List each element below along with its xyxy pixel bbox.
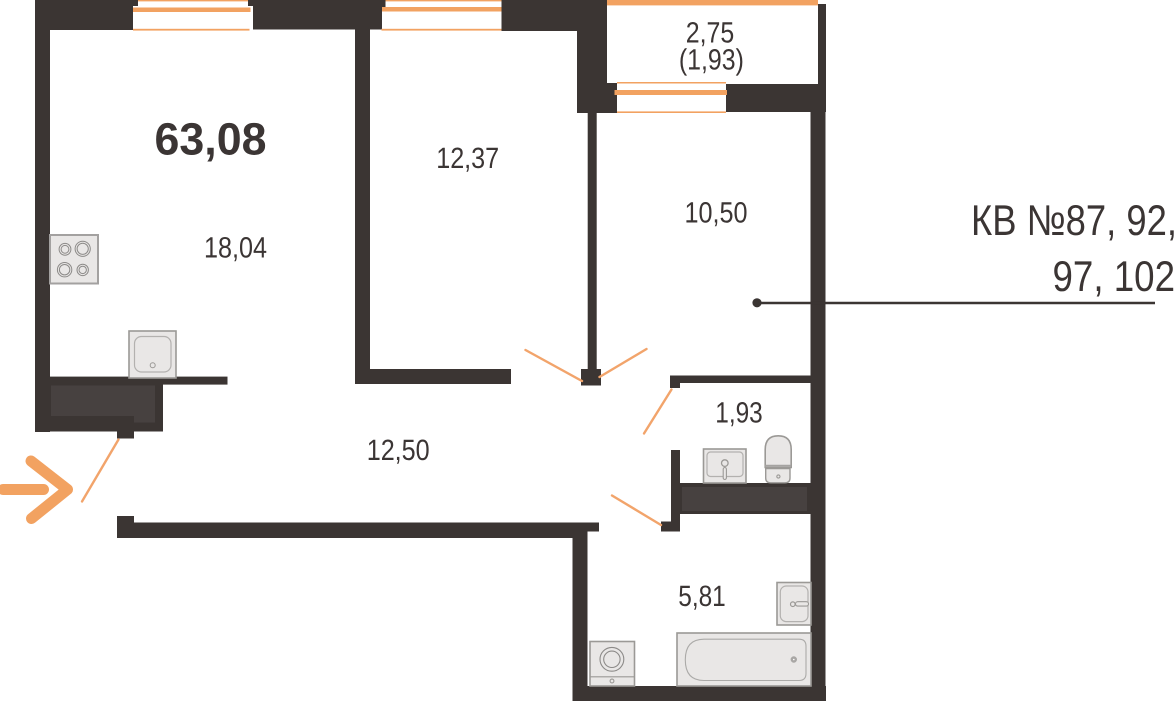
svg-text:5,81: 5,81: [678, 580, 726, 613]
svg-text:(1,93): (1,93): [679, 44, 744, 77]
svg-text:12,37: 12,37: [436, 142, 499, 175]
svg-text:12,50: 12,50: [367, 434, 430, 467]
svg-text:1,93: 1,93: [715, 397, 763, 430]
svg-text:63,08: 63,08: [155, 113, 267, 164]
svg-text:18,04: 18,04: [204, 232, 267, 265]
svg-text:КВ №87, 92,: КВ №87, 92,: [971, 197, 1174, 245]
svg-text:97, 102: 97, 102: [1053, 253, 1174, 301]
svg-text:10,50: 10,50: [685, 196, 748, 229]
